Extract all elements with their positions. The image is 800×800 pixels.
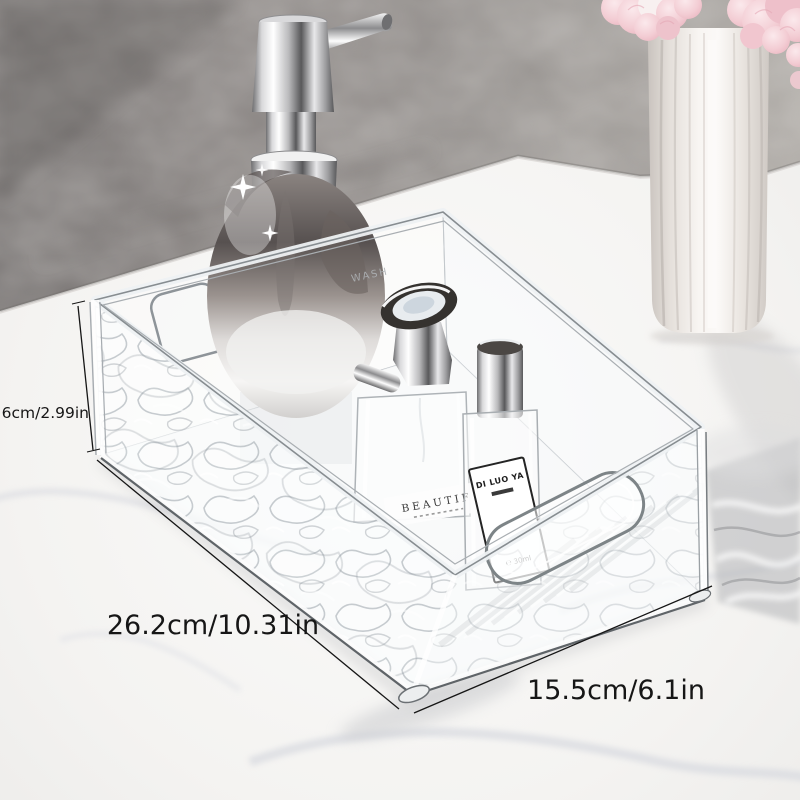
- product-screenshot: WASH BEAUTIF: [0, 0, 800, 800]
- height-dimension-label: 7.6cm/2.99in: [0, 404, 89, 422]
- scene-canvas: WASH BEAUTIF: [0, 0, 800, 800]
- small-cap: [477, 346, 523, 418]
- length-dimension-label: 26.2cm/10.31in: [107, 610, 319, 641]
- width-dimension-label: 15.5cm/6.1in: [527, 675, 705, 706]
- pump-head: [252, 22, 334, 112]
